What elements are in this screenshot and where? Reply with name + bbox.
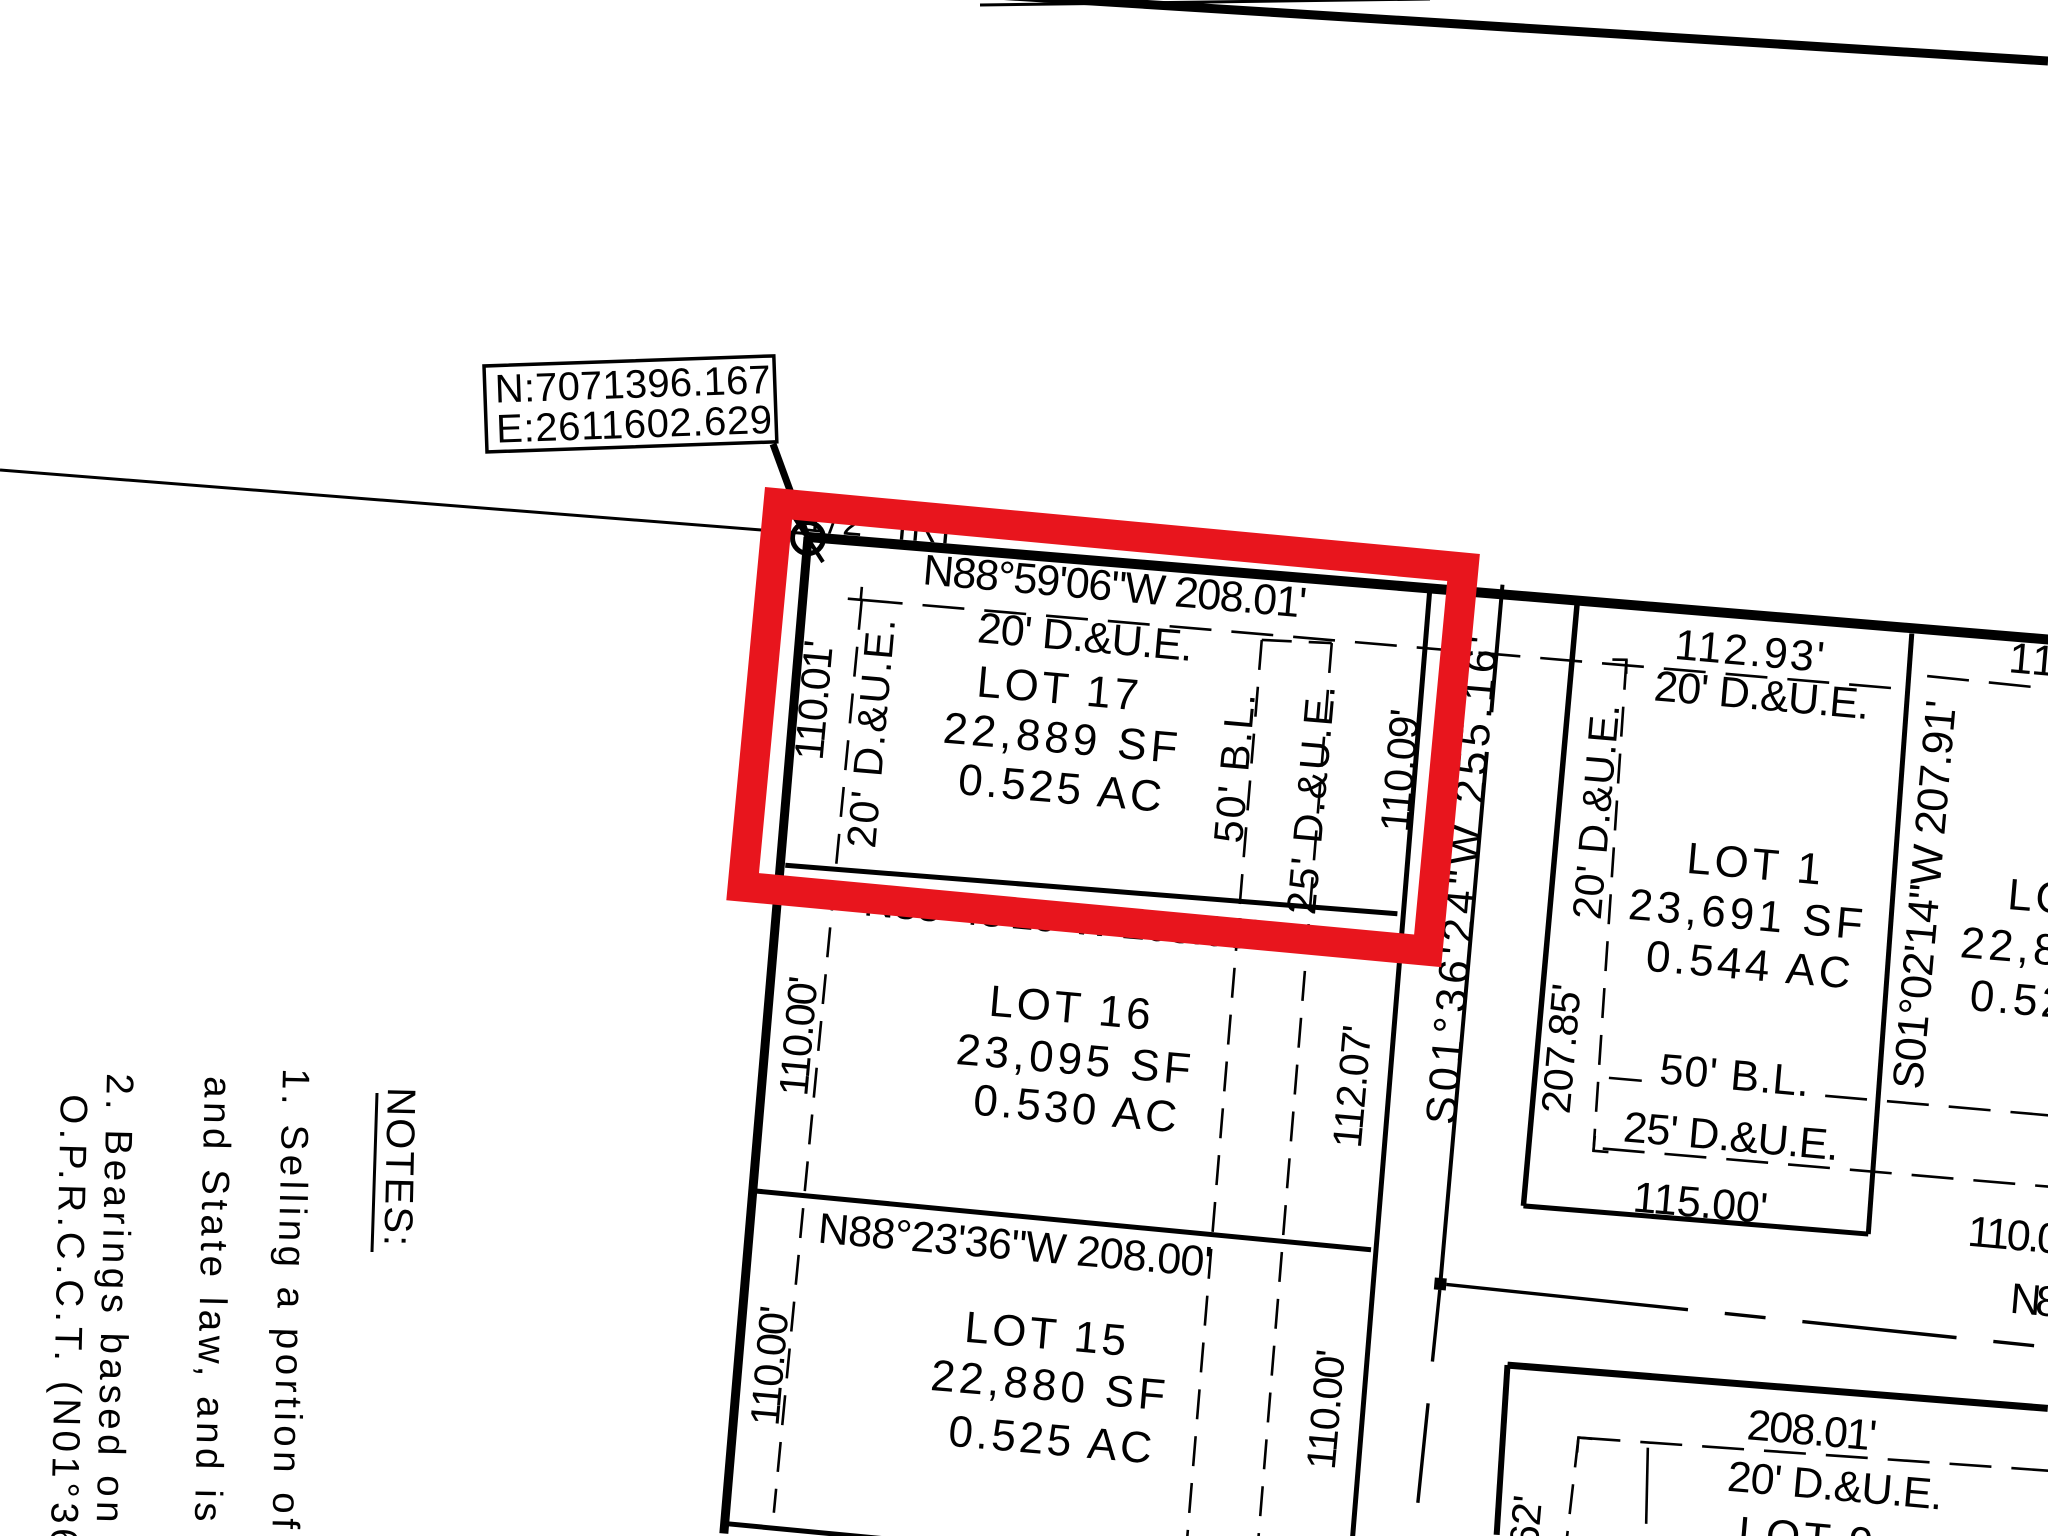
svg-text:NOTES:: NOTES: <box>375 1087 423 1249</box>
